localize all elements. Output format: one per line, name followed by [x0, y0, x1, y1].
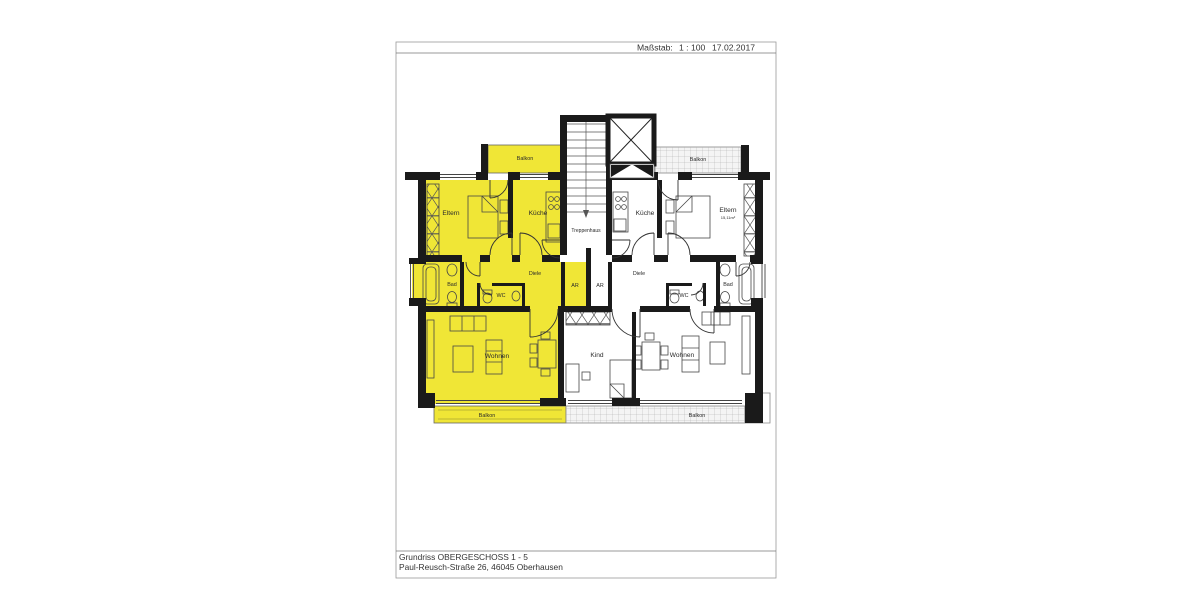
label-kueche-left: Küche — [529, 210, 548, 217]
balcony-bottom-left — [434, 406, 566, 423]
drawing-title: Grundriss OBERGESCHOSS 1 - 5 — [399, 552, 528, 562]
label-eltern-right-area: 15,11m² — [721, 215, 736, 220]
label-balkon-bottom-left: Balkon — [479, 413, 495, 419]
wardrobe-left — [427, 184, 439, 256]
label-bad-right: Bad — [723, 282, 733, 288]
label-eltern-left: Eltern — [442, 210, 460, 217]
label-diele-left: Diele — [529, 271, 541, 277]
label-wohnen-left: Wohnen — [485, 353, 510, 360]
label-ar-left: AR — [571, 283, 579, 289]
label-balkon-top-left: Balkon — [517, 156, 533, 162]
label-diele-right: Diele — [633, 271, 645, 277]
label-bad-left: Bad — [447, 282, 457, 288]
wardrobe-right — [744, 184, 756, 256]
drawing-address: Paul-Reusch-Straße 26, 46045 Oberhausen — [399, 562, 563, 572]
scale-label: Maßstab: — [637, 43, 673, 53]
label-wc-left: WC — [497, 293, 506, 299]
label-kueche-right: Küche — [636, 210, 655, 217]
date-value: 17.02.2017 — [712, 43, 755, 53]
floorplan-drawing: Maßstab: 1 : 100 17.02.2017 Grundriss OB… — [0, 0, 1200, 600]
label-wohnen-right: Wohnen — [670, 352, 695, 359]
label-eltern-right: Eltern — [719, 207, 737, 214]
elevator-shaft — [608, 116, 654, 178]
label-ar-right: AR — [596, 283, 604, 289]
label-wc-right: WC — [680, 293, 689, 299]
label-treppenhaus: Treppenhaus — [571, 228, 601, 234]
scanned-floorplan-page: Maßstab: 1 : 100 17.02.2017 Grundriss OB… — [0, 0, 1200, 600]
header-strip: Maßstab: 1 : 100 17.02.2017 — [637, 43, 755, 53]
label-balkon-top-right: Balkon — [690, 157, 706, 163]
label-balkon-bottom-right: Balkon — [689, 413, 705, 419]
scale-value: 1 : 100 — [679, 43, 706, 53]
label-kind: Kind — [590, 352, 604, 359]
